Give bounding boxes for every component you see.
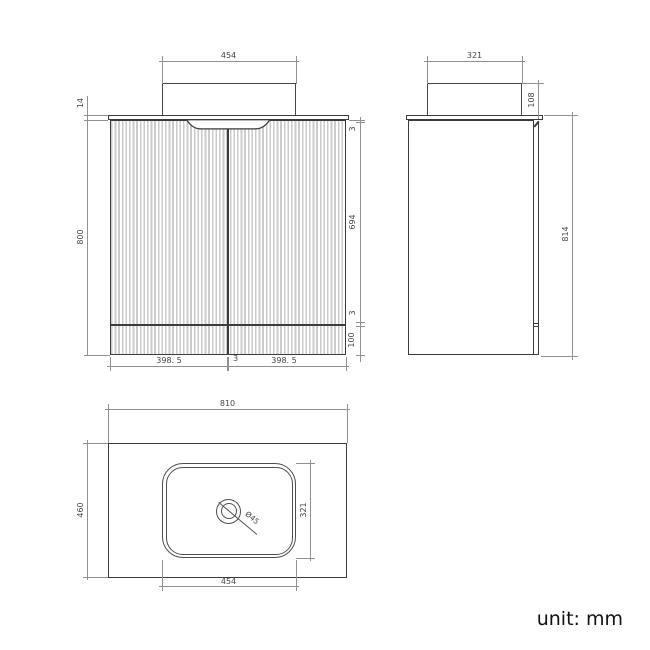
dim-label-cabinet-height: 800	[77, 229, 85, 244]
technical-drawing-canvas: 454 14 800 3 694 3 100 398. 5 3 398. 5 3…	[0, 0, 650, 650]
dim-line-cabinet-height	[87, 120, 88, 356]
side-door-gap-mark	[533, 323, 539, 324]
side-door-front-edge	[533, 121, 539, 356]
dim-line-side-basin-depth	[424, 61, 525, 62]
extension-line	[347, 404, 348, 443]
dim-label-door-height: 694	[349, 214, 357, 229]
dim-label-countertop-width: 810	[220, 400, 235, 408]
extension-line	[346, 357, 347, 371]
extension-line-center-gap	[227, 357, 229, 371]
dim-line-total-height	[572, 112, 573, 360]
dim-line-plan-basin-depth	[310, 460, 311, 561]
dim-label-side-basin-depth: 321	[467, 52, 482, 60]
extension-line	[108, 404, 109, 443]
dim-label-plan-basin-width: 454	[221, 578, 236, 586]
side-basin	[427, 83, 522, 116]
dim-label-plinth-height: 100	[348, 332, 356, 347]
dim-label-total-height: 814	[562, 226, 570, 241]
extension-line	[296, 463, 315, 464]
dim-label-countertop-thickness: 14	[77, 98, 85, 108]
extension-line	[84, 115, 108, 116]
dim-tick	[356, 326, 365, 327]
extension-line	[84, 120, 108, 121]
front-door-gap-line	[227, 128, 229, 355]
extension-line	[522, 83, 544, 84]
dim-label-top-gap: 3	[349, 126, 357, 131]
dim-line-front-basin-width	[159, 61, 299, 62]
dim-label-plan-basin-depth: 321	[300, 502, 308, 517]
dim-line-plan-basin-width	[159, 586, 299, 587]
extension-line	[84, 355, 110, 356]
dim-tick	[356, 355, 365, 356]
dim-line-basin-height	[538, 80, 539, 119]
dim-tick	[356, 122, 365, 123]
side-countertop	[406, 115, 543, 120]
dim-tick	[356, 322, 365, 323]
dim-label-front-basin-width: 454	[221, 52, 236, 60]
extension-line	[296, 558, 315, 559]
extension-line	[110, 357, 111, 371]
dim-label-door-width-left: 398. 5	[156, 357, 181, 365]
front-basin	[162, 83, 296, 116]
dim-label-countertop-depth: 460	[77, 502, 85, 517]
dim-line-countertop-width	[105, 409, 350, 410]
side-cabinet-carcass	[408, 120, 534, 355]
dim-label-door-width-right: 398. 5	[271, 357, 296, 365]
dim-line-front-bottom	[107, 366, 349, 367]
dim-line-countertop-depth	[87, 440, 88, 580]
dim-tick	[356, 120, 365, 121]
side-door-gap-mark	[533, 326, 539, 327]
front-countertop	[108, 115, 349, 120]
unit-label: unit: mm	[537, 608, 623, 630]
dim-label-bottom-gap: 3	[349, 310, 357, 315]
dim-label-basin-height: 108	[528, 92, 536, 107]
dim-label-center-gap: 3	[233, 355, 238, 363]
